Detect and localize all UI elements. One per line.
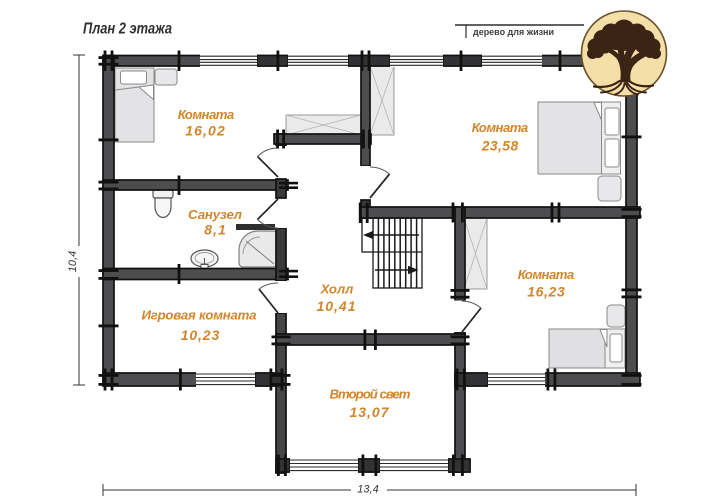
svg-text:10,23: 10,23 <box>181 327 220 343</box>
svg-text:13,4: 13,4 <box>357 484 378 496</box>
svg-text:Холл: Холл <box>320 282 354 297</box>
svg-text:10,41: 10,41 <box>317 298 356 314</box>
svg-text:План 2 этажа: План 2 этажа <box>83 21 172 38</box>
svg-text:16,23: 16,23 <box>527 284 565 300</box>
svg-text:дерево для жизни: дерево для жизни <box>473 27 554 38</box>
svg-text:Комната: Комната <box>178 107 235 122</box>
svg-text:Санузел: Санузел <box>188 207 242 222</box>
svg-text:10,4: 10,4 <box>67 251 79 272</box>
svg-text:23,58: 23,58 <box>481 138 519 154</box>
svg-text:Комната: Комната <box>518 267 575 282</box>
svg-text:16,02: 16,02 <box>185 123 225 139</box>
svg-text:Комната: Комната <box>472 120 529 135</box>
svg-text:13,07: 13,07 <box>350 404 390 420</box>
svg-text:8,1: 8,1 <box>204 222 226 238</box>
svg-text:Игровая комната: Игровая комната <box>142 308 257 323</box>
svg-text:Второй свет: Второй свет <box>330 387 411 402</box>
